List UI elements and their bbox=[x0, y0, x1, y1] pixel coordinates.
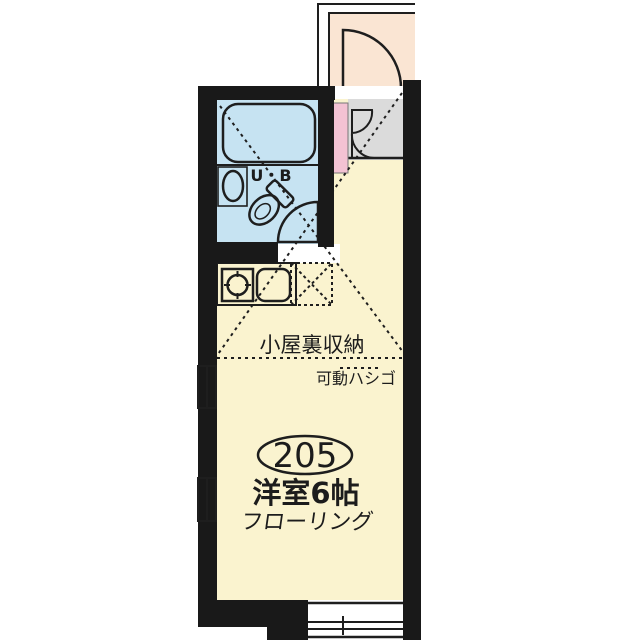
entry-gap bbox=[333, 86, 403, 99]
window-bottom bbox=[308, 602, 403, 640]
attic-storage-label: 小屋裏収納 bbox=[260, 333, 365, 357]
wall-right bbox=[403, 80, 421, 640]
ladder-label: 可動ハシゴ bbox=[316, 369, 396, 388]
floorplan-drawing: U・B bbox=[0, 0, 640, 640]
floorplan: U・B bbox=[0, 0, 640, 640]
room-type-label: 洋室6帖 bbox=[252, 476, 359, 510]
wall-left bbox=[198, 86, 217, 627]
wall-bottom-left bbox=[198, 600, 308, 627]
flooring-label: フローリング bbox=[239, 509, 375, 535]
genkan-floor bbox=[348, 99, 403, 160]
wall-below-bath bbox=[198, 242, 278, 263]
wall-top bbox=[198, 86, 335, 100]
pink-cabinet bbox=[332, 103, 348, 173]
wall-bath-right bbox=[318, 95, 334, 247]
room-number: 205 bbox=[273, 436, 338, 476]
wall-bottom-step bbox=[267, 627, 308, 640]
